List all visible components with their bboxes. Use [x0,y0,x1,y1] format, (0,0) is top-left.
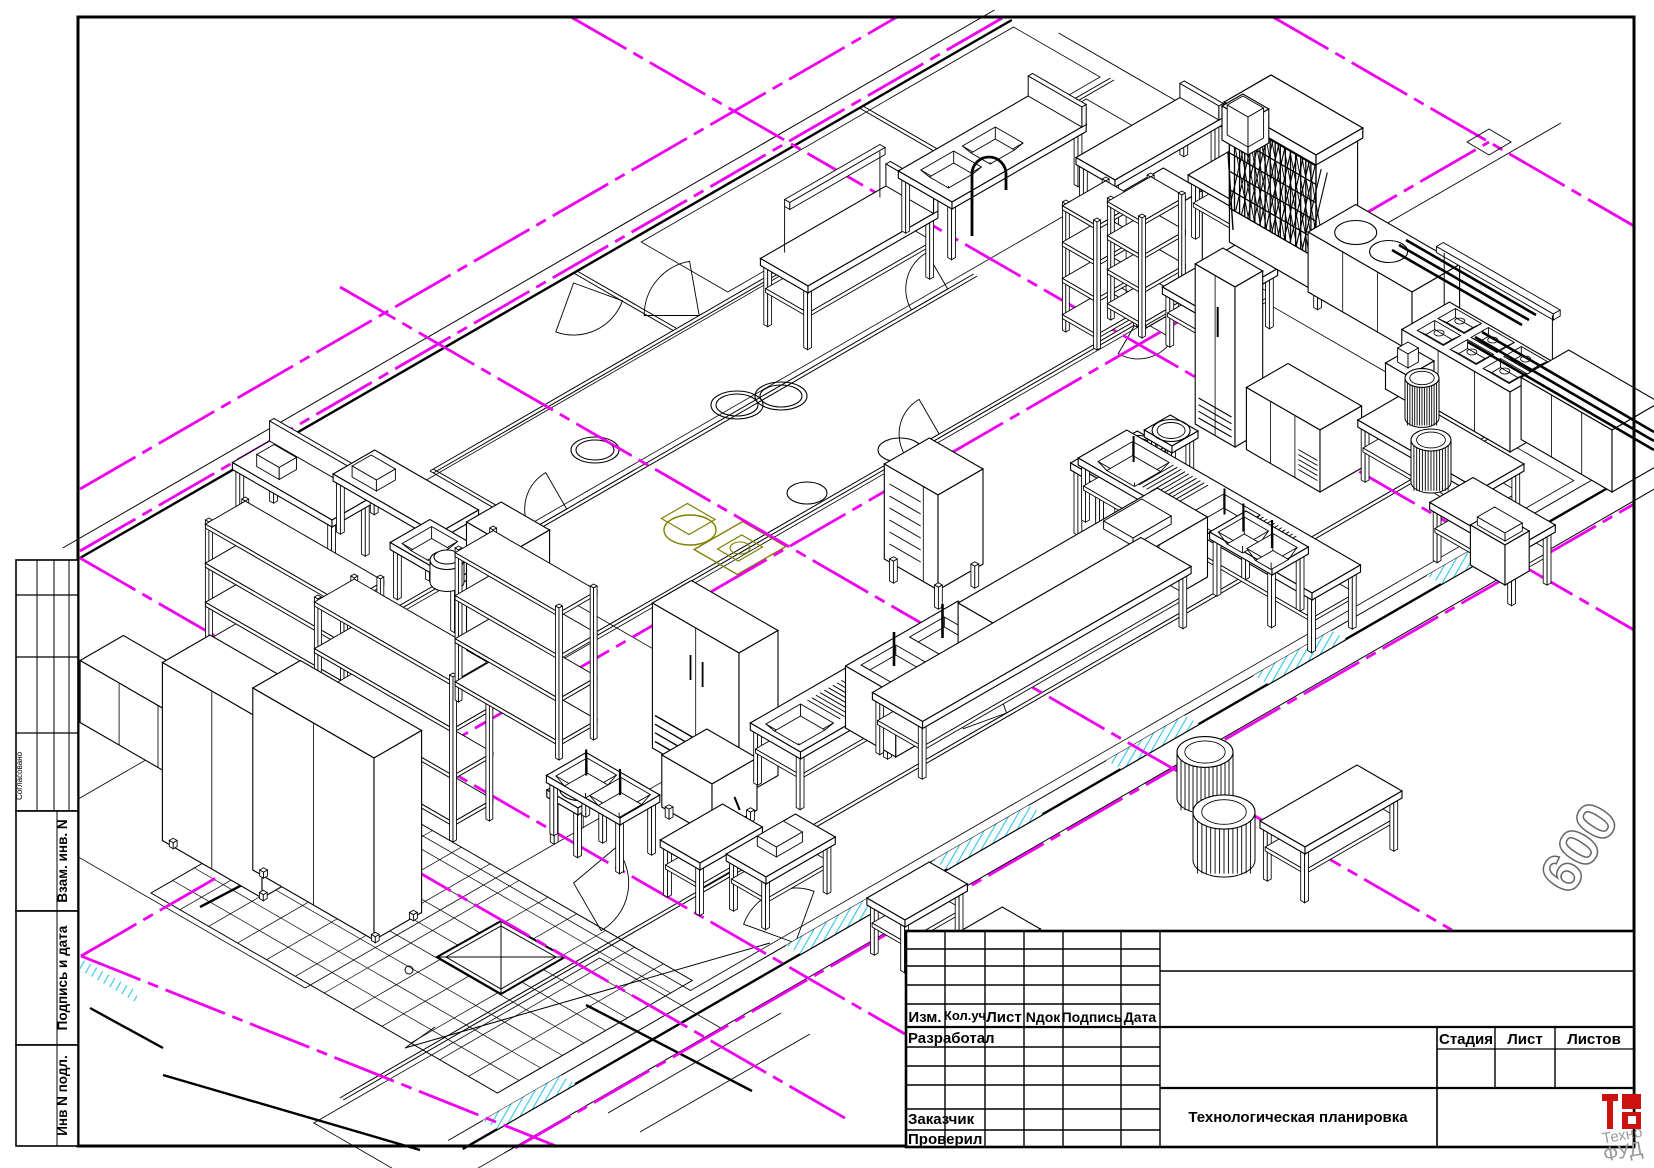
svg-text:Лист: Лист [1507,1031,1542,1048]
svg-text:Nдок: Nдок [1026,1009,1062,1025]
svg-text:Изм.: Изм. [908,1009,941,1026]
svg-text:Кол.уч: Кол.уч [944,1008,986,1023]
svg-text:Подпись: Подпись [1062,1009,1123,1025]
svg-text:Разработал: Разработал [908,1030,995,1047]
svg-text:Стадия: Стадия [1439,1031,1493,1048]
svg-text:Инв N подл.: Инв N подл. [55,1055,70,1136]
svg-text:Технологическая планировка: Технологическая планировка [1188,1109,1408,1126]
svg-text:Листов: Листов [1567,1031,1621,1048]
svg-text:Лист: Лист [986,1009,1021,1026]
svg-text:Заказчик: Заказчик [908,1111,975,1128]
svg-text:Проверил: Проверил [908,1131,982,1148]
svg-text:Подпись и дата: Подпись и дата [55,925,70,1030]
svg-text:Согласовано: Согласовано [15,751,24,800]
svg-text:Взам. инв. N: Взам. инв. N [55,819,70,902]
svg-text:Дата: Дата [1124,1009,1157,1025]
